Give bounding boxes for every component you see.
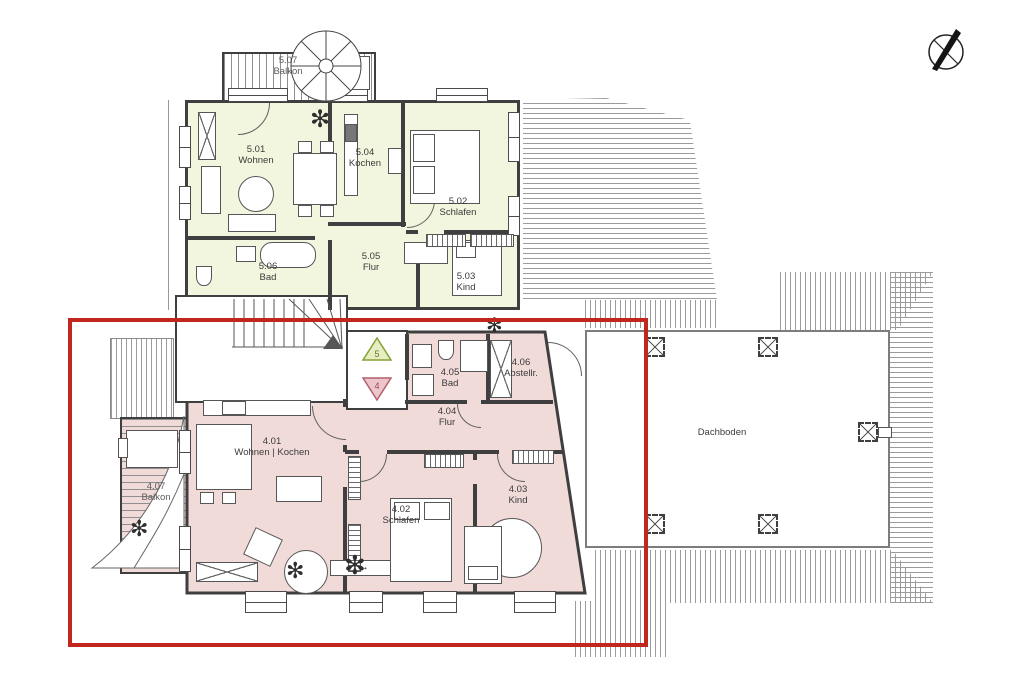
roof-area-upper-right [523,98,717,300]
floor-plan: 5 4 [0,0,1024,675]
window [508,112,520,162]
wardrobe [470,234,514,247]
window [508,196,520,236]
plant-icon: ✻ [310,108,330,132]
window [179,126,191,168]
round-table [238,176,274,212]
chair [320,205,334,217]
pillow [413,166,435,194]
roof-edge-line-left [168,100,169,310]
toilet [196,266,212,286]
sofa [228,214,276,232]
skylight-marker [858,422,878,442]
wall [406,230,418,234]
room-label-5-05: 5.05 Flur [326,252,416,273]
sink [236,246,256,262]
room-label-5-04: 5.04 Kochen [320,148,410,169]
pillow [413,134,435,162]
wall [185,236,315,240]
roof-band-attic-right [890,272,933,603]
attic-label: Dachboden [677,428,767,439]
kitchen-sink [345,124,357,142]
room-label-5-03: 5.03 Kind [421,272,511,293]
skylight-marker [645,514,665,534]
highlight-outline-apartment-4 [68,318,648,647]
skylight-marker [758,514,778,534]
wardrobe [426,234,466,247]
window [228,88,288,102]
skylight-marker [758,337,778,357]
window [179,186,191,220]
sofa [201,166,221,214]
room-label-5-02: 5.02 Schlafen [413,197,503,218]
wall [328,222,406,226]
room-label-5-07: 5.07 Balkon [243,56,333,77]
room-label-5-06: 5.06 Bad [223,262,313,283]
skylight-marker [645,337,665,357]
window [436,88,488,102]
compass-north-icon [912,12,984,84]
chimney-stub [878,427,892,438]
room-label-5-01: 5.01 Wohnen [211,145,301,166]
chair [298,205,312,217]
